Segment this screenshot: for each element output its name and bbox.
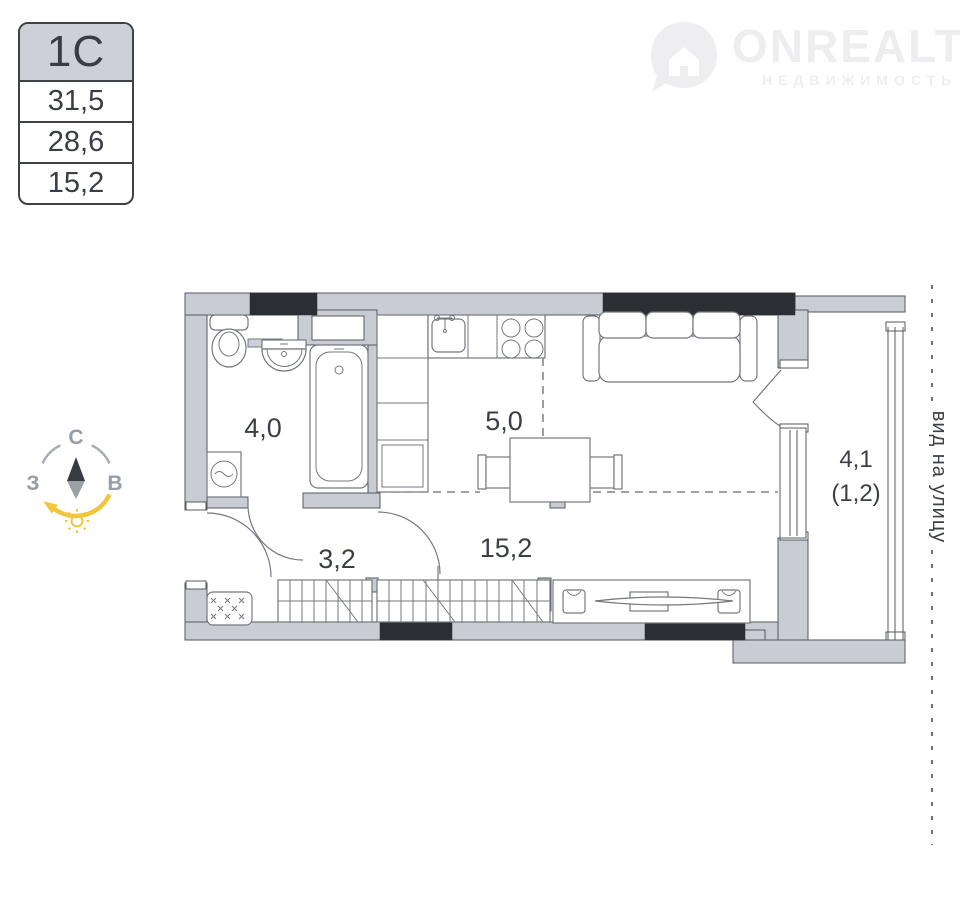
wardrobe-left — [278, 580, 372, 622]
kitchen-sink — [432, 316, 465, 353]
kitchen-door — [378, 512, 440, 580]
floor-plan-page: 1С 31,5 28,6 15,2 ONREALT НЕДВИЖИМОСТЬ — [0, 0, 960, 910]
hallway-area-label: 3,2 — [318, 544, 356, 574]
balcony-door — [753, 370, 781, 426]
compass-needle-south — [67, 481, 85, 499]
bathtub — [310, 345, 368, 488]
compass: С З В — [26, 426, 122, 533]
compass-west-label: З — [26, 472, 39, 495]
balcony-reduced-area-label: (1,2) — [831, 480, 880, 507]
bathroom-door — [248, 505, 303, 560]
floor-plan-drawing: 4,0 5,0 3,2 15,2 4,1 (1,2) вид на улицу … — [0, 0, 960, 910]
street-view-annotation: вид на улицу — [928, 285, 950, 845]
balcony-window — [780, 428, 806, 538]
wardrobe-right — [377, 580, 550, 622]
tv-stand — [553, 580, 750, 623]
bathroom-area-label: 4,0 — [244, 413, 282, 443]
balcony-glazing — [888, 327, 903, 640]
sun-path-arc — [55, 495, 110, 516]
compass-north-label: С — [68, 426, 83, 449]
sun-icon — [65, 509, 89, 533]
washing-machine — [207, 452, 241, 497]
entry-mat — [207, 592, 252, 625]
bathroom-sink — [248, 339, 306, 371]
compass-needle-north — [67, 457, 85, 481]
living-area-label: 15,2 — [480, 533, 533, 563]
street-view-label: вид на улицу — [928, 411, 950, 544]
balcony-area-label: 4,1 — [839, 446, 872, 473]
entry-door — [207, 513, 271, 577]
toilet — [210, 315, 248, 367]
kitchen-area-label: 5,0 — [485, 406, 523, 436]
sofa — [583, 312, 757, 382]
compass-east-label: В — [107, 472, 122, 495]
